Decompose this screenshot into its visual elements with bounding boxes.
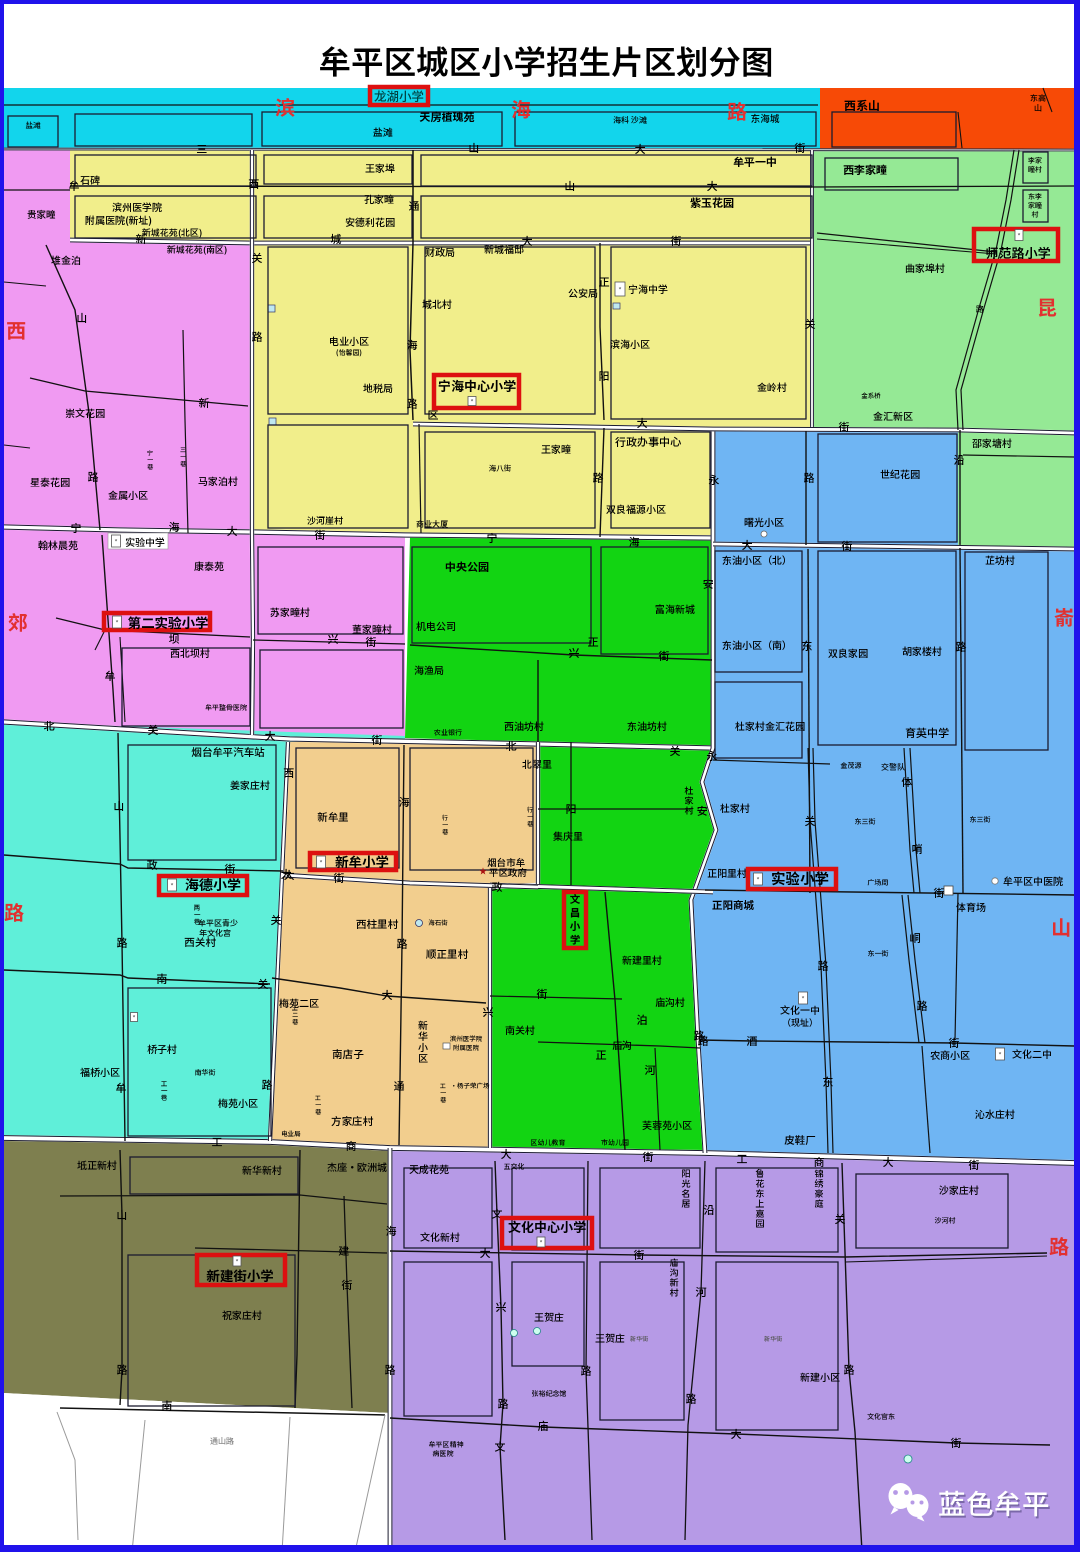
svg-text:盐滩: 盐滩 [373, 124, 393, 139]
svg-text:文化宫东: 文化宫东 [867, 1412, 895, 1422]
svg-text:街: 街 [949, 1035, 960, 1051]
svg-text:安: 安 [697, 803, 708, 819]
svg-text:天房植瑰苑: 天房植瑰苑 [420, 109, 475, 125]
svg-text:文: 文 [495, 1439, 507, 1455]
svg-text:东油坊村: 东油坊村 [627, 718, 668, 733]
svg-text:双良福源小区: 双良福源小区 [606, 501, 666, 516]
svg-text:路: 路 [694, 1028, 705, 1044]
svg-text:新建里村: 新建里村 [622, 952, 663, 967]
svg-text:路: 路 [407, 396, 418, 412]
svg-text:通: 通 [409, 198, 420, 214]
svg-text:南: 南 [162, 1398, 173, 1414]
svg-text:新: 新 [136, 231, 148, 247]
svg-text:南关村: 南关村 [505, 1022, 536, 1037]
svg-text:文化二中: 文化二中 [1012, 1046, 1052, 1061]
svg-text:街: 街 [839, 419, 850, 435]
svg-text:福桥小区: 福桥小区 [80, 1064, 120, 1079]
svg-text:金属小区: 金属小区 [107, 487, 148, 502]
svg-text:关: 关 [670, 743, 681, 759]
svg-text:路: 路 [498, 1396, 509, 1412]
svg-text:天成花苑: 天成花苑 [409, 1161, 449, 1176]
svg-text:海德小学: 海德小学 [185, 875, 241, 895]
svg-text:山: 山 [469, 140, 480, 156]
svg-text:海: 海 [386, 1223, 397, 1239]
svg-text:大: 大 [707, 178, 718, 194]
svg-text:体: 体 [902, 774, 914, 790]
svg-text:阳: 阳 [566, 801, 577, 817]
svg-text:贵家疃: 贵家疃 [27, 207, 56, 221]
svg-text:关: 关 [805, 316, 816, 332]
svg-text:实验小学: 实验小学 [771, 868, 829, 889]
svg-text:富海新城: 富海新城 [655, 601, 695, 616]
svg-text:东海城: 东海城 [751, 111, 780, 125]
svg-text:滨: 滨 [275, 92, 295, 121]
svg-text:关: 关 [148, 722, 159, 738]
svg-text:东: 东 [823, 1074, 834, 1090]
svg-text:正阳里村: 正阳里村 [707, 865, 748, 880]
svg-text:体育场: 体育场 [955, 899, 987, 914]
svg-text:街: 街 [643, 1149, 654, 1165]
svg-text:育英中学: 育英中学 [905, 725, 949, 741]
svg-text:牟平区中医院: 牟平区中医院 [1003, 873, 1063, 888]
svg-text:泊: 泊 [637, 1012, 648, 1028]
svg-text:庙: 庙 [538, 1418, 549, 1434]
svg-text:街: 街 [671, 233, 682, 249]
svg-text:（现址）: （现址） [782, 1016, 818, 1029]
svg-text:巷: 巷 [442, 827, 448, 836]
svg-text:西: 西 [6, 315, 26, 344]
svg-text:巷: 巷 [292, 1017, 298, 1026]
svg-text:商: 商 [346, 1138, 357, 1154]
svg-text:西系山: 西系山 [844, 97, 880, 114]
svg-text:街: 街 [366, 634, 377, 650]
svg-text:桥子村: 桥子村 [147, 1041, 178, 1056]
svg-text:西: 西 [249, 176, 260, 192]
svg-text:市幼儿园: 市幼儿园 [601, 1138, 629, 1148]
svg-text:大: 大 [382, 987, 393, 1003]
svg-text:海: 海 [169, 519, 180, 535]
svg-text:大: 大 [742, 537, 753, 553]
svg-text:牟平区城区小学招生片区划分图: 牟平区城区小学招生片区划分图 [318, 37, 773, 84]
svg-text:庭: 庭 [814, 1197, 823, 1210]
svg-text:海: 海 [399, 794, 410, 810]
svg-text:巷: 巷 [527, 819, 533, 828]
svg-text:巷: 巷 [315, 1107, 321, 1116]
svg-text:通: 通 [394, 1078, 405, 1094]
svg-text:海: 海 [407, 337, 418, 353]
svg-text:街: 街 [969, 1157, 980, 1173]
svg-text:牟: 牟 [105, 668, 116, 684]
svg-text:平区政府: 平区政府 [489, 865, 527, 879]
svg-text:蓝色牟平: 蓝色牟平 [938, 1482, 1050, 1522]
svg-text:石碑: 石碑 [80, 172, 100, 187]
svg-text:北: 北 [44, 718, 56, 734]
svg-text:海渔局: 海渔局 [414, 662, 444, 677]
svg-text:庙沟: 庙沟 [612, 1037, 632, 1052]
svg-text:沙家庄村: 沙家庄村 [939, 1182, 980, 1197]
svg-text:芷坊村: 芷坊村 [985, 552, 1016, 567]
svg-text:嵛: 嵛 [1054, 602, 1074, 631]
svg-text:行政办事中心: 行政办事中心 [615, 434, 681, 450]
svg-text:财政局: 财政局 [425, 244, 455, 259]
svg-text:海八街: 海八街 [489, 463, 512, 474]
svg-text:西柱里村: 西柱里村 [356, 917, 398, 932]
svg-text:东油小区（南）: 东油小区（南） [722, 637, 792, 652]
svg-text:王家埠: 王家埠 [365, 160, 395, 175]
svg-text:第二实验小学: 第二实验小学 [128, 612, 209, 632]
svg-text:山: 山 [114, 798, 125, 814]
svg-text:沙河崖村: 沙河崖村 [307, 514, 343, 527]
svg-text:路: 路 [956, 639, 967, 655]
svg-text:商业大厦: 商业大厦 [416, 519, 448, 530]
svg-text:电业小区: 电业小区 [329, 333, 369, 348]
svg-text:海石街: 海石街 [428, 917, 448, 927]
svg-text:文化新村: 文化新村 [420, 1229, 461, 1244]
svg-text:新城花苑(北区): 新城花苑(北区) [142, 226, 202, 239]
svg-text:路: 路 [397, 936, 408, 952]
svg-text:城: 城 [331, 231, 343, 247]
svg-text:张裕纪念馆: 张裕纪念馆 [532, 1389, 567, 1399]
svg-text:街: 街 [934, 885, 945, 901]
svg-text:梅苑小区: 梅苑小区 [217, 1095, 258, 1110]
svg-text:崇文花园: 崇文花园 [65, 405, 105, 420]
svg-text:街: 街 [951, 1435, 962, 1451]
svg-text:大: 大 [635, 141, 646, 157]
svg-text:世纪花园: 世纪花园 [880, 466, 920, 481]
svg-text:牟: 牟 [116, 1080, 127, 1096]
svg-text:(怡馨园): (怡馨园) [336, 348, 362, 358]
svg-text:兴: 兴 [569, 645, 580, 661]
svg-text:疃村: 疃村 [1028, 165, 1042, 175]
svg-text:新华街: 新华街 [764, 1334, 783, 1343]
svg-text:皮鞋厂: 皮鞋厂 [784, 1133, 816, 1148]
svg-text:正: 正 [599, 274, 610, 290]
svg-text:新建街小学: 新建街小学 [206, 1265, 274, 1285]
svg-text:正: 正 [596, 1047, 607, 1063]
svg-text:村: 村 [669, 1286, 678, 1299]
svg-text:大: 大 [522, 233, 533, 249]
svg-text:关: 关 [271, 912, 282, 928]
svg-text:交警队: 交警队 [880, 762, 906, 773]
svg-text:路: 路 [727, 96, 747, 125]
svg-text:路: 路 [262, 1077, 273, 1093]
svg-text:王家疃: 王家疃 [541, 441, 571, 456]
svg-text:宁: 宁 [71, 520, 82, 536]
svg-text:河: 河 [696, 1284, 707, 1300]
svg-text:兴: 兴 [496, 1299, 507, 1315]
svg-text:街: 街 [659, 648, 670, 664]
svg-text:郊: 郊 [8, 607, 28, 636]
svg-text:东三街: 东三街 [854, 817, 876, 827]
svg-text:园: 园 [755, 1217, 764, 1230]
svg-text:居: 居 [680, 1197, 690, 1210]
svg-text:街: 街 [842, 538, 853, 554]
svg-text:路: 路 [1049, 1231, 1069, 1260]
svg-text:曲家埠村: 曲家埠村 [905, 260, 946, 275]
svg-text:大: 大 [731, 1426, 742, 1442]
svg-text:翰林晨苑: 翰林晨苑 [38, 537, 78, 552]
svg-text:山: 山 [117, 1207, 128, 1223]
svg-text:新牟小学: 新牟小学 [335, 851, 389, 871]
svg-text:·杨子荣广场: ·杨子荣广场 [451, 1080, 491, 1090]
svg-text:工: 工 [737, 1151, 748, 1167]
svg-text:金汇新区: 金汇新区 [872, 408, 913, 423]
svg-text:盐滩: 盐滩 [26, 120, 41, 131]
svg-text:大: 大 [480, 1245, 491, 1261]
svg-text:堆金泊: 堆金泊 [51, 252, 81, 267]
svg-text:康泰苑: 康泰苑 [194, 558, 224, 573]
svg-text:正: 正 [588, 634, 599, 650]
svg-text:文化一中: 文化一中 [780, 1002, 820, 1017]
svg-text:大: 大 [281, 866, 292, 882]
svg-text:大: 大 [265, 728, 276, 744]
svg-text:山: 山 [77, 310, 88, 326]
svg-text:街: 街 [537, 986, 548, 1002]
svg-text:电业局: 电业局 [281, 1128, 301, 1138]
svg-text:东一街: 东一街 [867, 949, 889, 959]
svg-text:庙沟村: 庙沟村 [655, 994, 686, 1009]
svg-text:农业银行: 农业银行 [433, 728, 462, 738]
svg-text:城北村: 城北村 [422, 296, 453, 311]
svg-text:安德利花园: 安德利花园 [345, 214, 395, 229]
svg-text:北翠里: 北翠里 [522, 756, 552, 771]
svg-text:西李家疃: 西李家疃 [843, 162, 887, 178]
svg-text:龙湖小学: 龙湖小学 [373, 86, 425, 105]
svg-text:苏家疃村: 苏家疃村 [270, 604, 311, 619]
svg-text:街: 街 [795, 140, 806, 156]
svg-text:北: 北 [506, 738, 518, 754]
svg-text:海科 沙滩: 海科 沙滩 [613, 115, 647, 126]
svg-text:宁海中学: 宁海中学 [628, 281, 668, 296]
svg-text:街: 街 [372, 732, 383, 748]
svg-text:关: 关 [258, 976, 269, 992]
svg-text:宁: 宁 [487, 530, 498, 546]
svg-text:祝家庄村: 祝家庄村 [222, 1307, 263, 1322]
svg-text:机电公司: 机电公司 [416, 618, 456, 633]
svg-text:姜家庄村: 姜家庄村 [230, 777, 271, 792]
svg-text:滨海小区: 滨海小区 [610, 336, 650, 351]
svg-text:牟: 牟 [69, 178, 80, 194]
svg-text:西: 西 [284, 765, 295, 781]
svg-text:海: 海 [511, 94, 531, 123]
svg-text:集庆里: 集庆里 [552, 828, 583, 843]
svg-text:路: 路 [4, 897, 24, 926]
svg-text:巷: 巷 [440, 1095, 446, 1104]
svg-text:路: 路 [917, 998, 928, 1014]
svg-text:紫玉花园: 紫玉花园 [690, 195, 734, 211]
svg-text:昆: 昆 [1037, 292, 1057, 321]
svg-text:南店子: 南店子 [332, 1047, 364, 1062]
svg-text:街: 街 [334, 870, 345, 886]
svg-text:公安局: 公安局 [568, 285, 598, 300]
svg-text:实验中学: 实验中学 [125, 534, 165, 549]
svg-text:哨: 哨 [912, 841, 923, 857]
svg-text:南华街: 南华街 [195, 1068, 216, 1078]
svg-text:街: 街 [315, 527, 326, 543]
svg-text:商: 商 [814, 1154, 825, 1170]
svg-text:区幼儿教育: 区幼儿教育 [531, 1138, 566, 1148]
svg-text:邵家塘村: 邵家塘村 [972, 435, 1013, 450]
svg-text:新: 新 [199, 395, 211, 411]
svg-text:学: 学 [570, 933, 581, 948]
svg-text:杰座·欧洲城: 杰座·欧洲城 [327, 1159, 387, 1174]
svg-text:沿: 沿 [704, 1202, 715, 1218]
svg-text:方家庄村: 方家庄村 [331, 1114, 373, 1129]
svg-text:关: 关 [835, 1211, 846, 1227]
svg-text:巷: 巷 [147, 462, 153, 471]
svg-text:坝: 坝 [169, 631, 180, 647]
svg-text:兴: 兴 [483, 1004, 494, 1020]
svg-text:政: 政 [492, 879, 504, 895]
svg-text:新城花苑(南区): 新城花苑(南区) [167, 243, 227, 256]
svg-text:沁水庄村: 沁水庄村 [975, 1106, 1016, 1121]
svg-text:东: 东 [802, 638, 813, 654]
svg-text:路: 路 [818, 958, 829, 974]
svg-text:附属医院(新址): 附属医院(新址) [85, 212, 152, 227]
svg-text:路: 路 [581, 1363, 592, 1379]
svg-text:河: 河 [645, 1062, 656, 1078]
svg-text:路: 路 [844, 1362, 855, 1378]
svg-text:永: 永 [709, 472, 720, 488]
svg-text:★: ★ [479, 866, 487, 877]
svg-text:坻正新村: 坻正新村 [77, 1157, 118, 1172]
svg-text:关: 关 [805, 813, 816, 829]
svg-text:中央公园: 中央公园 [445, 559, 489, 575]
svg-text:杜家村金汇花园: 杜家村金汇花园 [735, 718, 805, 733]
svg-text:山: 山 [565, 178, 576, 194]
svg-text:大: 大 [501, 1146, 512, 1162]
svg-text:大: 大 [883, 1154, 894, 1170]
svg-text:街: 街 [634, 1247, 645, 1263]
svg-text:路: 路 [252, 329, 263, 345]
svg-text:金岭村: 金岭村 [756, 379, 788, 394]
svg-text:酒: 酒 [747, 1033, 758, 1049]
svg-text:广场周: 广场周 [868, 878, 889, 888]
svg-text:区: 区 [418, 1050, 428, 1065]
svg-text:王贺庄: 王贺庄 [595, 1330, 625, 1345]
svg-text:山: 山 [1034, 103, 1042, 114]
svg-text:曙光小区: 曙光小区 [744, 514, 784, 529]
svg-text:西关村: 西关村 [184, 935, 216, 950]
svg-text:牟平一中: 牟平一中 [733, 154, 777, 170]
svg-text:双良家园: 双良家园 [828, 645, 868, 660]
svg-text:路: 路 [975, 304, 984, 315]
svg-text:金茂源: 金茂源 [841, 761, 862, 771]
svg-text:路: 路 [117, 1362, 128, 1378]
svg-text:路: 路 [804, 470, 815, 486]
svg-text:附属医院: 附属医院 [453, 1042, 480, 1052]
svg-text:胡家楼村: 胡家楼村 [902, 643, 943, 658]
svg-text:沙河村: 沙河村 [935, 1216, 956, 1226]
svg-text:街: 街 [342, 1277, 353, 1293]
svg-text:东油小区（北）: 东油小区（北） [722, 552, 792, 567]
svg-text:阳: 阳 [599, 368, 610, 384]
svg-text:路: 路 [117, 935, 128, 951]
svg-text:梅苑二区: 梅苑二区 [278, 995, 319, 1010]
svg-text:永: 永 [707, 748, 718, 764]
svg-text:孔家疃: 孔家疃 [363, 191, 394, 206]
svg-text:大: 大 [227, 523, 238, 539]
svg-text:大: 大 [637, 415, 648, 431]
svg-text:杜家村: 杜家村 [720, 800, 751, 815]
svg-text:兴: 兴 [328, 631, 339, 647]
svg-text:正阳商城: 正阳商城 [712, 898, 754, 913]
svg-text:新城福邸: 新城福邸 [484, 241, 524, 256]
svg-text:新牟里: 新牟里 [317, 810, 349, 825]
svg-text:路: 路 [686, 1391, 697, 1407]
svg-text:三: 三 [197, 141, 208, 157]
svg-text:通山路: 通山路 [210, 1436, 234, 1447]
svg-text:新华街: 新华街 [630, 1334, 649, 1343]
svg-text:关: 关 [252, 250, 263, 266]
svg-text:顺正里村: 顺正里村 [426, 947, 468, 962]
svg-text:峒: 峒 [910, 930, 921, 946]
svg-text:烟台牟平汽车站: 烟台牟平汽车站 [191, 745, 265, 760]
svg-text:马家泊村: 马家泊村 [198, 473, 239, 488]
svg-text:路: 路 [88, 469, 99, 485]
svg-text:师范路小学: 师范路小学 [985, 243, 1050, 262]
svg-text:宁海中心小学: 宁海中心小学 [438, 376, 516, 395]
svg-text:芙蓉苑小区: 芙蓉苑小区 [642, 1117, 692, 1132]
svg-text:病医院: 病医院 [432, 1449, 454, 1459]
svg-text:金系桥: 金系桥 [861, 390, 881, 400]
svg-text:西油坊村: 西油坊村 [504, 718, 545, 733]
svg-text:文化中心小学: 文化中心小学 [508, 1217, 586, 1236]
svg-text:牟平整骨医院: 牟平整骨医院 [205, 703, 247, 713]
svg-text:山: 山 [1051, 912, 1071, 941]
svg-text:南: 南 [157, 971, 168, 987]
svg-text:村: 村 [1031, 210, 1039, 220]
svg-text:政: 政 [147, 857, 159, 873]
svg-text:巷: 巷 [180, 459, 186, 468]
svg-text:东三街: 东三街 [969, 815, 991, 825]
svg-text:新华新村: 新华新村 [242, 1162, 283, 1177]
svg-text:沿: 沿 [954, 452, 965, 468]
svg-text:村: 村 [684, 804, 693, 817]
svg-text:地税局: 地税局 [363, 380, 393, 395]
svg-text:星泰花园: 星泰花园 [30, 474, 70, 489]
svg-text:新建小区: 新建小区 [800, 1369, 840, 1384]
svg-text:建: 建 [339, 1243, 350, 1259]
svg-text:路: 路 [593, 470, 604, 486]
svg-text:工: 工 [212, 1134, 223, 1150]
svg-text:巷: 巷 [161, 1092, 168, 1102]
svg-text:五交化: 五交化 [504, 1162, 525, 1172]
svg-text:西北坝村: 西北坝村 [170, 645, 211, 660]
svg-text:王贺庄: 王贺庄 [534, 1309, 564, 1324]
svg-text:路: 路 [385, 1362, 396, 1378]
